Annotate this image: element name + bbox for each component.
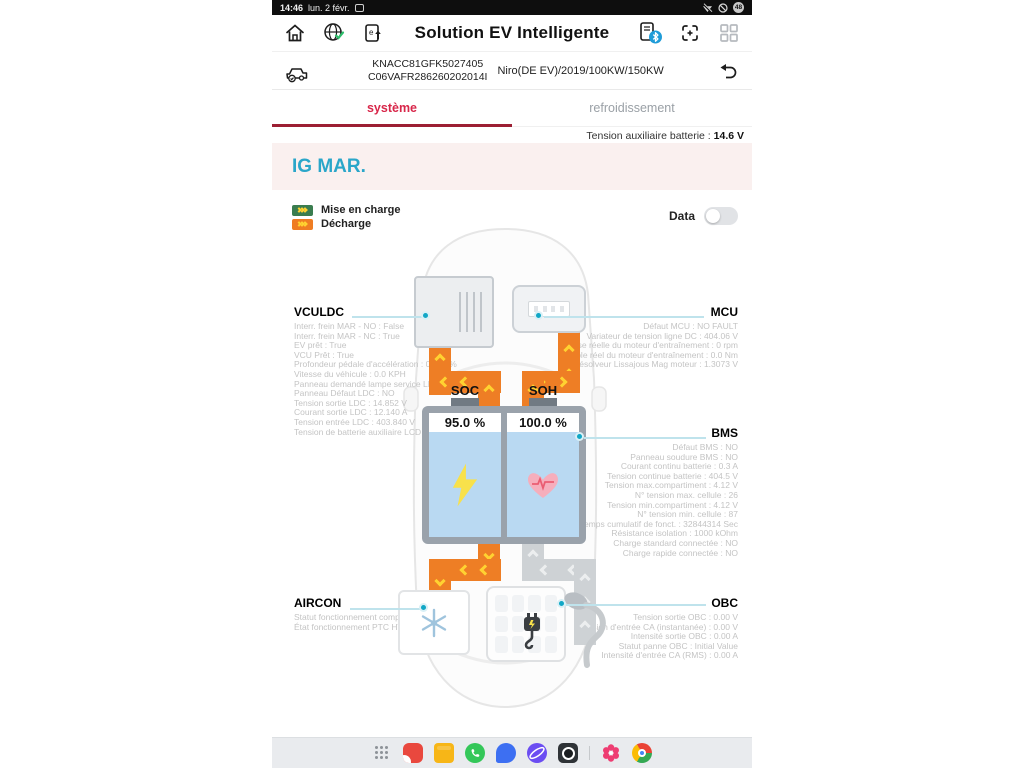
vin-line1: KNACC81GFK5027405 <box>368 58 487 71</box>
battery-terminal-right <box>529 398 557 406</box>
bms-node[interactable] <box>575 432 584 441</box>
my-files-icon[interactable] <box>434 743 454 763</box>
data-toggle-label: Data <box>669 209 695 223</box>
notes-app-icon[interactable] <box>403 743 423 763</box>
discharge-flow-icon <box>292 219 313 230</box>
soh-value: 100.0 % <box>507 413 579 432</box>
vculdc-leader <box>352 316 424 318</box>
status-banner-text: IG MAR. <box>292 156 366 178</box>
flow-legend: Mise en charge Décharge <box>292 203 400 231</box>
tab-systeme[interactable]: système <box>272 90 512 126</box>
clock: 14:46 <box>280 3 303 13</box>
globe-sync-icon[interactable] <box>321 20 347 46</box>
vehicle-check-icon[interactable] <box>284 58 310 84</box>
camera-icon[interactable] <box>558 743 578 763</box>
obc-leader <box>566 604 706 606</box>
scan-capture-icon[interactable] <box>677 20 703 46</box>
apps-grid-icon[interactable] <box>372 743 392 763</box>
soc-value: 95.0 % <box>429 413 501 432</box>
bms-leader <box>584 437 706 439</box>
apps-menu-icon[interactable] <box>716 20 742 46</box>
tab-bar: système refroidissement <box>272 90 752 127</box>
chrome-icon[interactable] <box>632 743 652 763</box>
charge-cable-icon <box>562 587 622 671</box>
phone-icon[interactable] <box>465 743 485 763</box>
legend-charge: Mise en charge <box>292 203 400 217</box>
page-title: Solution EV Intelligente <box>399 23 625 43</box>
aircon-node[interactable] <box>419 603 428 612</box>
vin-line2: C06VAFR286260202014I <box>368 71 487 84</box>
data-toggle-group: Data <box>669 207 738 225</box>
report-upload-icon[interactable]: e <box>360 20 386 46</box>
aircon-leader <box>350 608 422 610</box>
battery-pack[interactable]: 95.0 % 100.0 % <box>422 406 586 544</box>
wifi-off-icon <box>702 3 713 13</box>
legend-discharge: Décharge <box>292 217 400 231</box>
taskbar <box>272 737 752 768</box>
home-icon[interactable] <box>282 20 308 46</box>
svg-text:e: e <box>369 28 374 37</box>
vin-block[interactable]: KNACC81GFK5027405 C06VAFR286260202014I <box>368 58 487 84</box>
heatsink-fins-icon <box>459 292 482 332</box>
soh-label: SOH <box>513 383 573 398</box>
vehicle-bar: KNACC81GFK5027405 C06VAFR286260202014I N… <box>272 52 752 90</box>
vci-bluetooth-icon[interactable] <box>638 20 664 46</box>
aux-battery-value: 14.6 V <box>714 130 744 142</box>
mcu-unit[interactable] <box>512 285 586 333</box>
internet-browser-icon[interactable] <box>527 743 547 763</box>
heart-pulse-icon <box>526 470 560 500</box>
messages-icon[interactable] <box>496 743 516 763</box>
date: lun. 2 févr. <box>308 3 350 13</box>
app-bar: e Solution EV Intelligente <box>272 15 752 52</box>
status-banner: IG MAR. <box>272 143 752 190</box>
soc-cell: 95.0 % <box>429 413 501 537</box>
galaxy-store-icon[interactable] <box>601 743 621 763</box>
vehicle-model: Niro(DE EV)/2019/100KW/150KW <box>497 65 663 77</box>
status-bar: 14:46 lun. 2 févr. 48 <box>272 0 752 15</box>
system-diagram: Tension auxiliaire batterie : 14.6 V IG … <box>272 127 752 737</box>
param-line: Résolveur Lissajous Mag moteur : 1.3073 … <box>498 360 738 370</box>
plug-icon <box>512 613 552 659</box>
screenshot-icon <box>355 4 364 12</box>
app-window: 14:46 lun. 2 févr. 48 <box>272 0 752 768</box>
soc-label: SOC <box>435 383 495 398</box>
do-not-disturb-icon <box>718 3 728 13</box>
tab-refroidissement[interactable]: refroidissement <box>512 90 752 126</box>
return-icon[interactable] <box>714 58 740 84</box>
data-toggle-switch[interactable] <box>704 207 738 225</box>
lightning-icon <box>451 463 479 507</box>
aircon-unit[interactable] <box>398 590 470 655</box>
mcu-node[interactable] <box>534 311 543 320</box>
dock-divider <box>589 746 590 760</box>
obc-node[interactable] <box>557 599 566 608</box>
battery-indicator: 48 <box>733 2 744 13</box>
vculdc-node[interactable] <box>421 311 430 320</box>
battery-terminal-left <box>451 398 479 406</box>
soh-cell: 100.0 % <box>507 413 579 537</box>
aux-battery-voltage: Tension auxiliaire batterie : 14.6 V <box>586 130 744 142</box>
charge-flow-icon <box>292 205 313 216</box>
mcu-leader <box>544 316 704 318</box>
